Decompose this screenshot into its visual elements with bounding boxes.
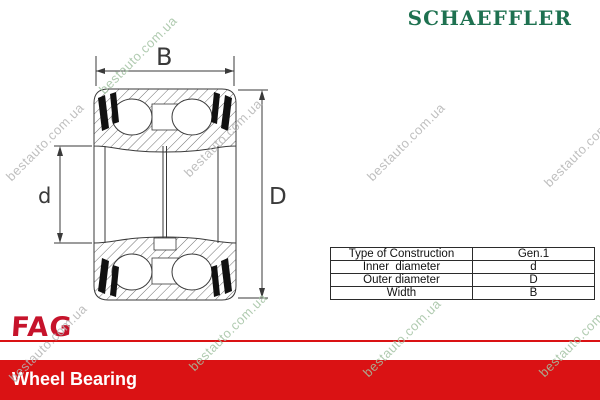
inner-ring-lines — [94, 146, 236, 243]
table-row: Width B — [331, 287, 595, 300]
spec-value: d — [473, 261, 595, 274]
spec-table: Type of Construction Gen.1 Inner diamete… — [330, 247, 595, 300]
dimension-d-inner — [54, 146, 92, 243]
fag-logo: FAG — [10, 312, 74, 343]
table-row: Inner diameter d — [331, 261, 595, 274]
dimension-d-outer — [238, 90, 268, 298]
dim-label-width: B — [156, 43, 172, 71]
spec-label: Type of Construction — [331, 248, 473, 261]
table-row: Type of Construction Gen.1 — [331, 248, 595, 261]
spec-label: Outer diameter — [331, 274, 473, 287]
schaeffler-logo: SCHAEFFLER — [408, 6, 572, 30]
bearing-drawing: B d D — [0, 0, 300, 320]
watermark: bestauto.com.ua — [364, 100, 448, 184]
spec-value: Gen.1 — [473, 248, 595, 261]
spec-value: D — [473, 274, 595, 287]
encoder-notch — [154, 238, 176, 250]
watermark: bestauto.com.ua — [541, 106, 600, 190]
red-divider-line — [0, 340, 600, 342]
dim-label-outer-diameter: D — [269, 184, 287, 210]
spec-value: B — [473, 287, 595, 300]
spec-label: Width — [331, 287, 473, 300]
dim-label-inner-diameter: d — [38, 184, 51, 208]
footer-bar: Wheel Bearing — [0, 360, 600, 400]
product-title: Wheel Bearing — [0, 360, 600, 398]
catalog-page: SCHAEFFLER — [0, 0, 600, 400]
table-row: Outer diameter D — [331, 274, 595, 287]
spec-label: Inner diameter — [331, 261, 473, 274]
